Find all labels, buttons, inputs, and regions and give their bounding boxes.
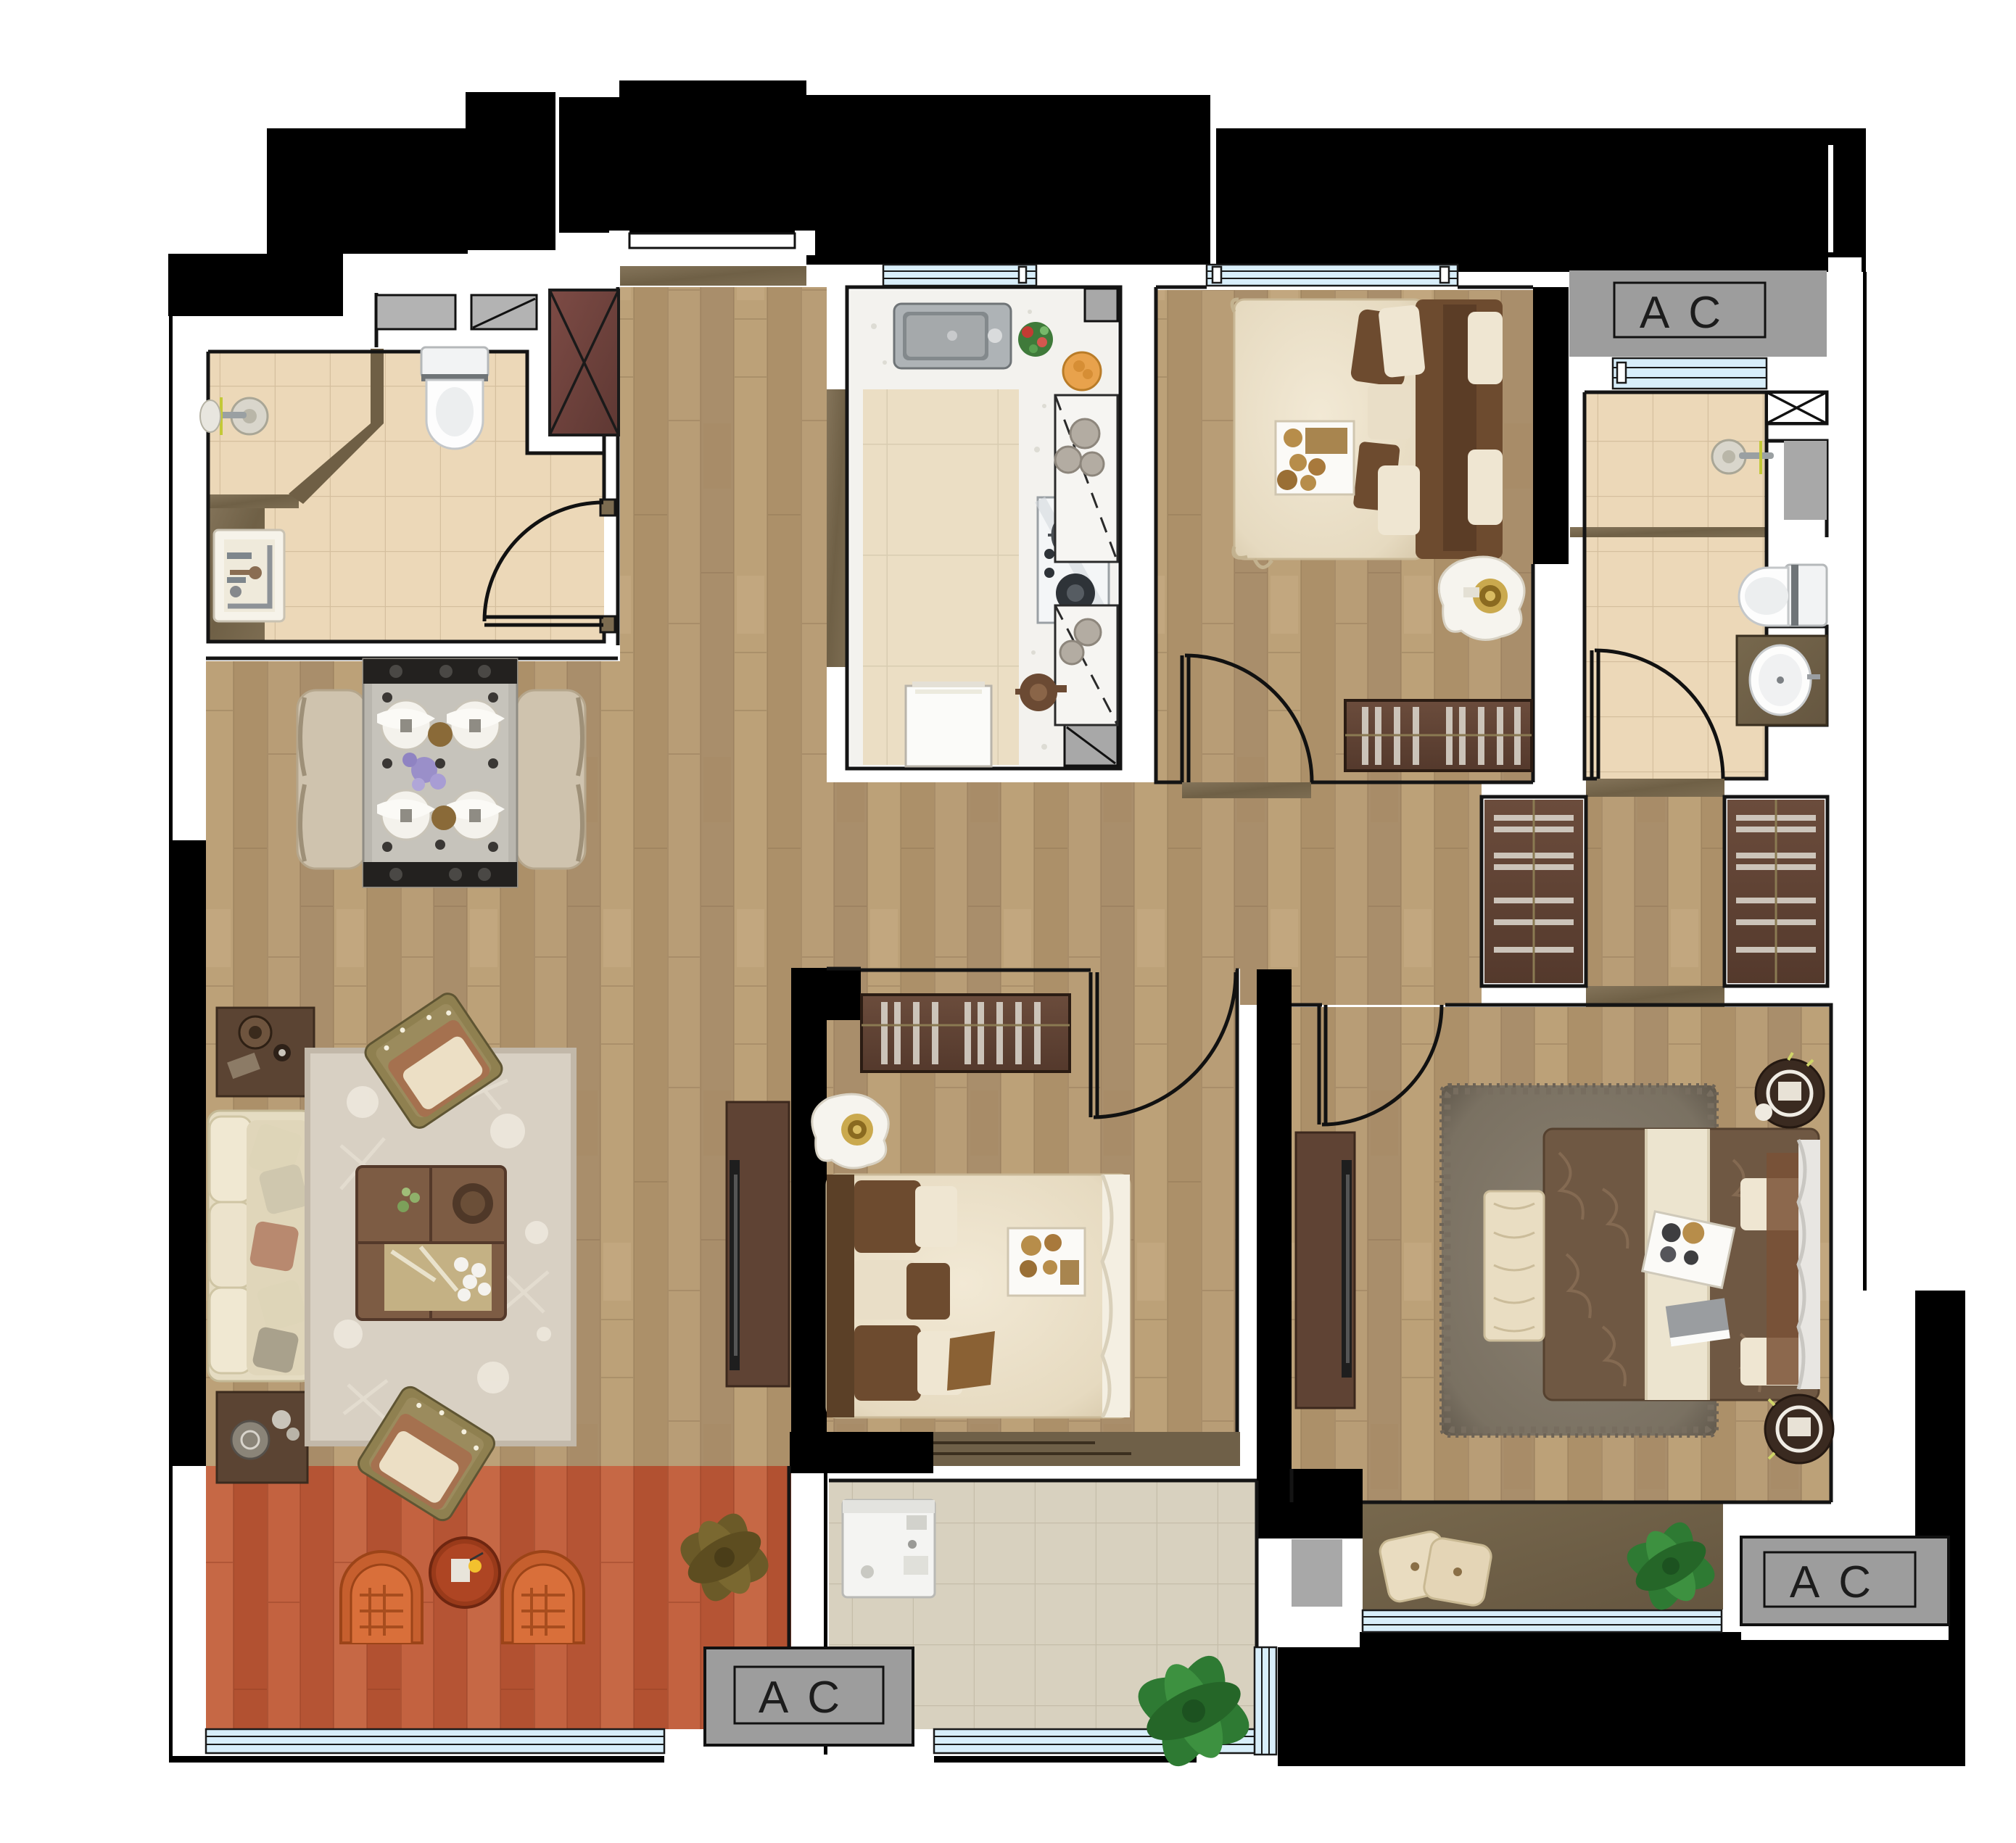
svg-text:AC: AC [759, 1673, 859, 1723]
svg-text:AC: AC [1790, 1557, 1890, 1607]
svg-text:AC: AC [1640, 288, 1740, 338]
